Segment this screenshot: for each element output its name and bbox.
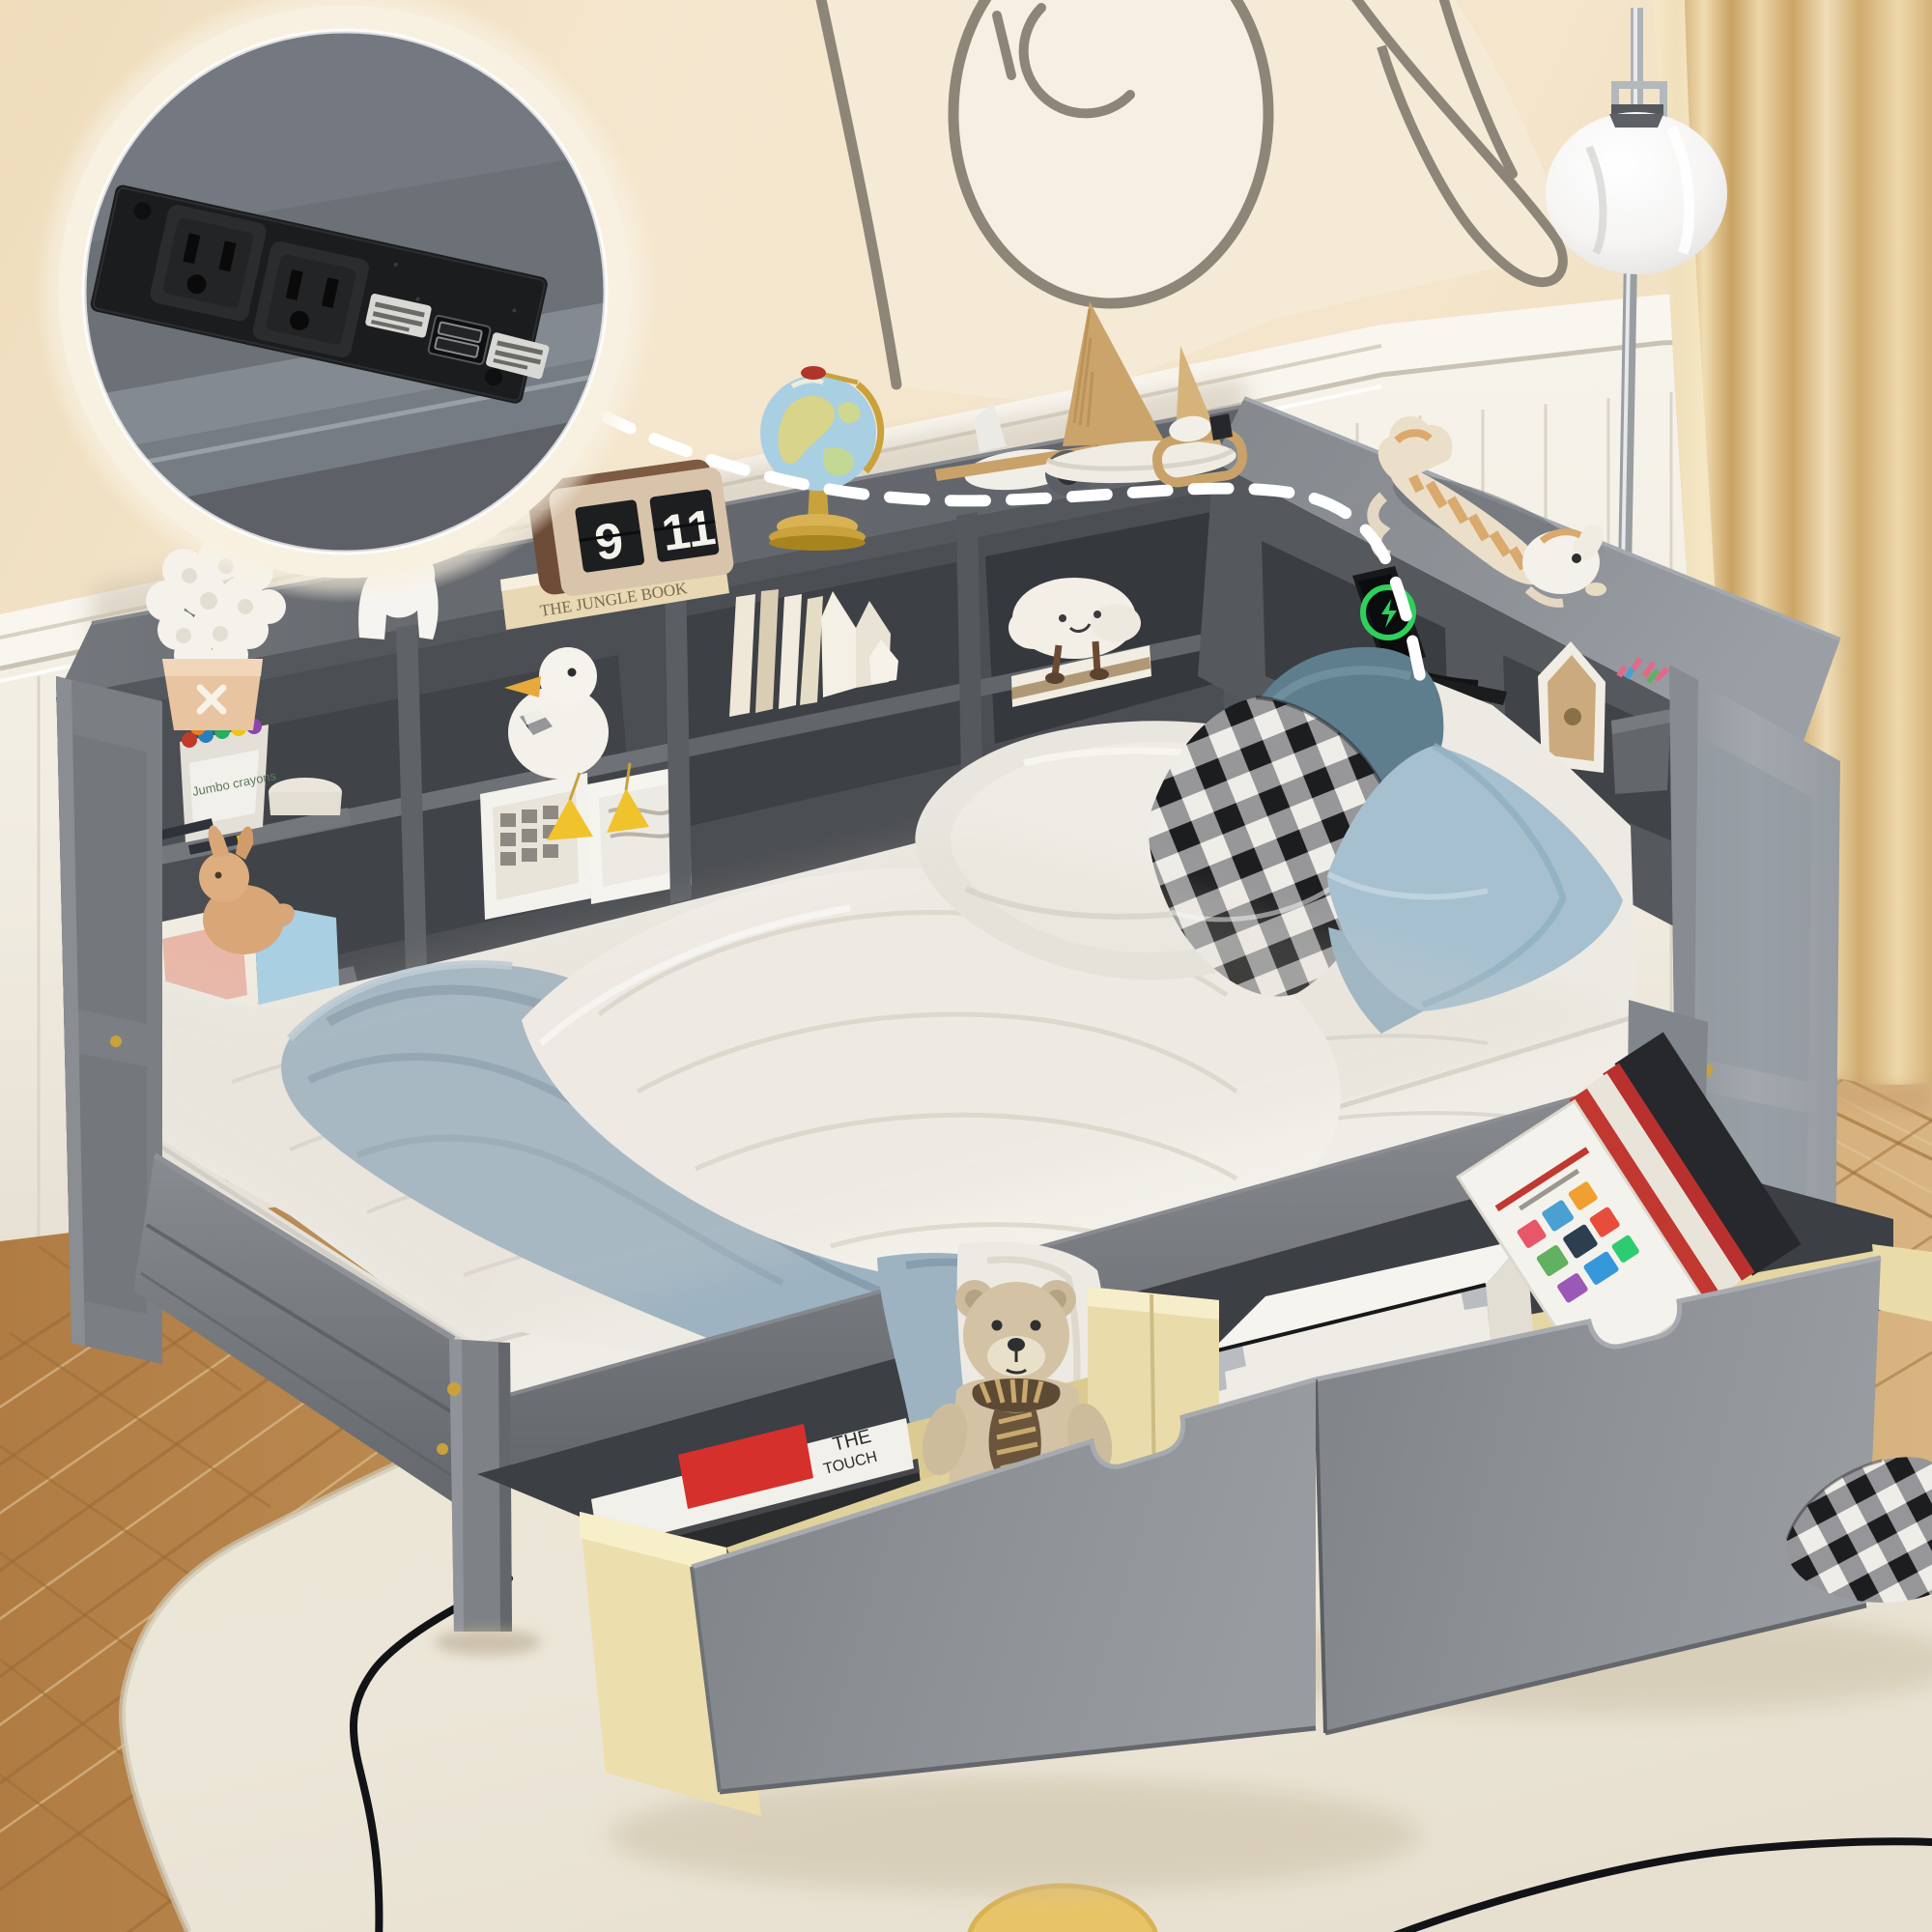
- svg-text:11: 11: [659, 499, 720, 562]
